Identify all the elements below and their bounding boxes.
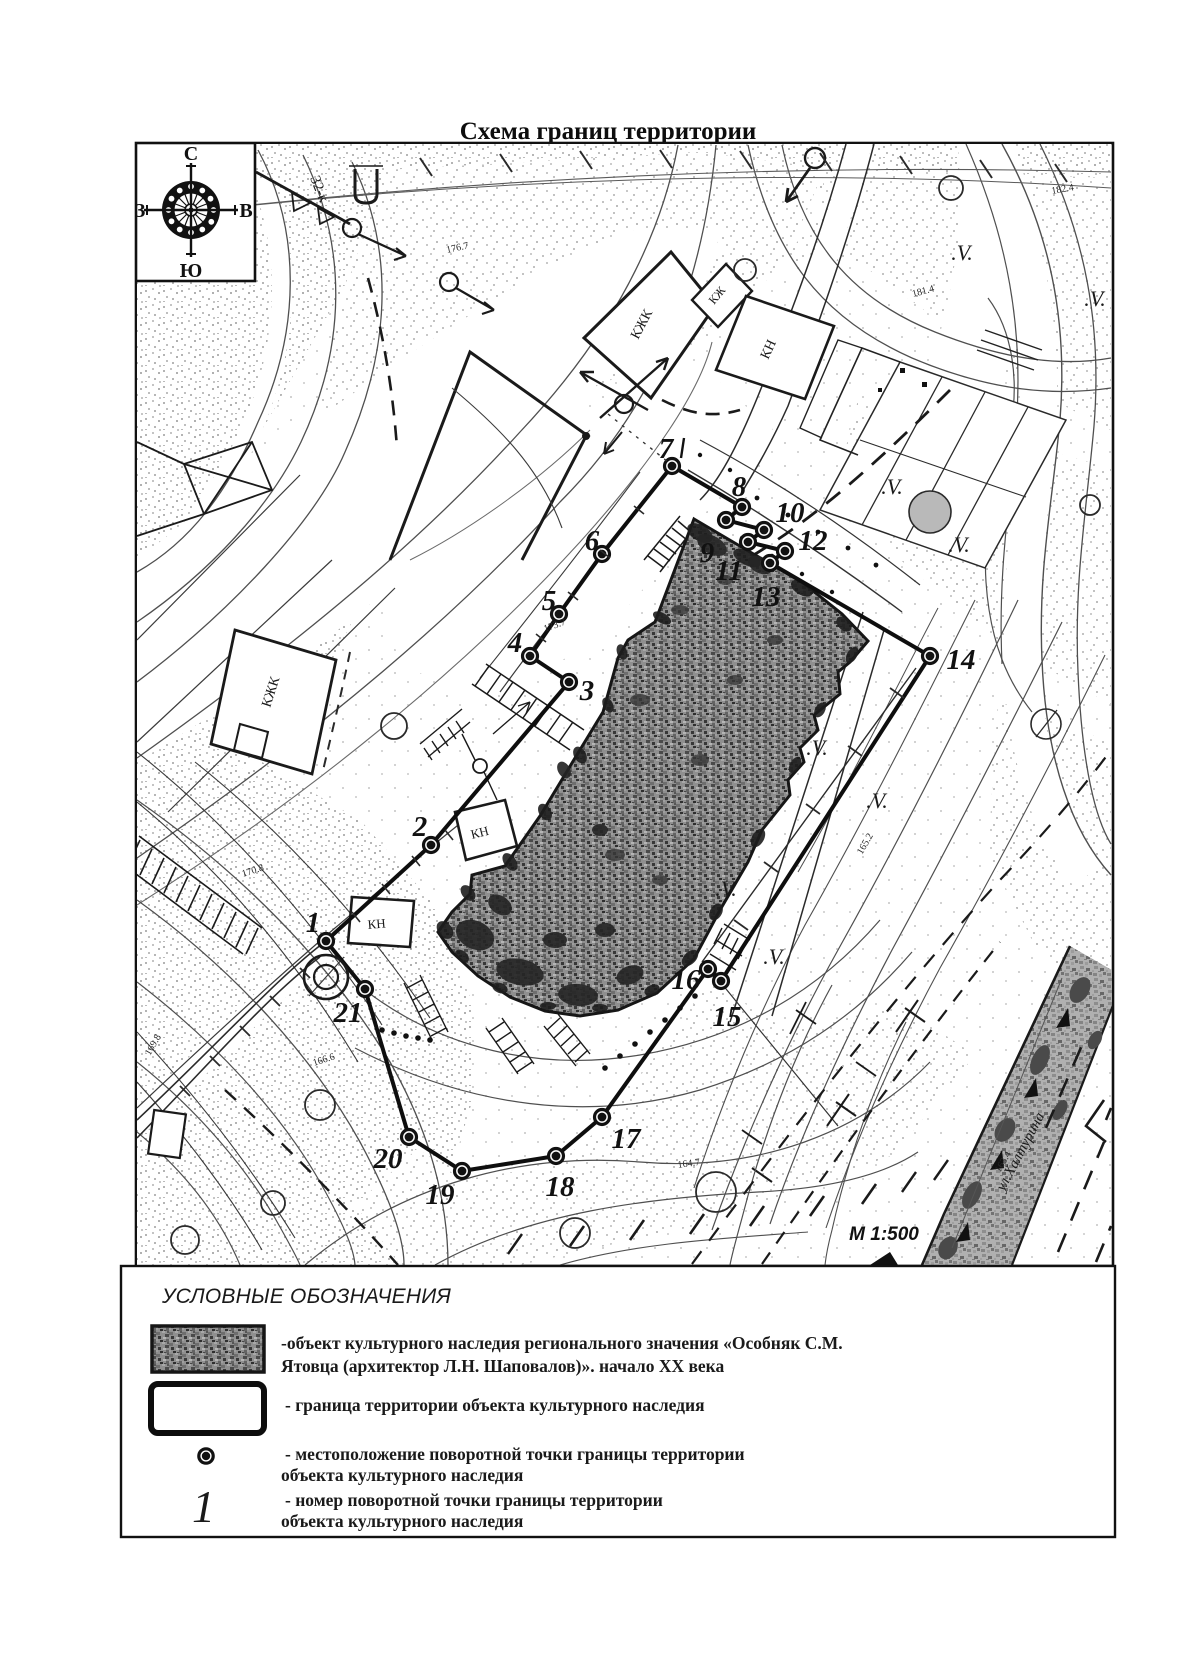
svg-text:- местоположение поворотной то: - местоположение поворотной точки границ… xyxy=(285,1444,745,1464)
svg-text:Ятовца (архитектор Л.Н. Шапова: Ятовца (архитектор Л.Н. Шаповалов)». нач… xyxy=(281,1356,725,1376)
svg-text:21: 21 xyxy=(333,997,363,1029)
svg-text:.V.: .V. xyxy=(715,876,737,901)
svg-text:11: 11 xyxy=(715,555,742,587)
svg-text:5: 5 xyxy=(542,585,557,617)
svg-text:КН: КН xyxy=(367,915,386,932)
svg-text:.V.: .V. xyxy=(866,788,888,813)
svg-text:17: 17 xyxy=(612,1123,643,1155)
svg-text:16: 16 xyxy=(672,964,702,996)
svg-text:12: 12 xyxy=(799,525,828,557)
svg-text:.V.: .V. xyxy=(1084,286,1106,311)
svg-text:С: С xyxy=(184,143,198,165)
svg-text:18: 18 xyxy=(546,1171,576,1203)
svg-text:9: 9 xyxy=(700,537,715,569)
svg-text:3: 3 xyxy=(579,675,595,707)
svg-text:объекта культурного наследия: объекта культурного наследия xyxy=(281,1465,523,1485)
svg-text:15: 15 xyxy=(713,1001,742,1033)
svg-text:М 1:500: М 1:500 xyxy=(849,1224,919,1245)
svg-text:- граница территории объекта к: - граница территории объекта культурного… xyxy=(285,1395,705,1415)
svg-text:4: 4 xyxy=(507,627,523,659)
svg-text:.V.: .V. xyxy=(763,944,785,969)
svg-text:Схема границ территории: Схема границ территории xyxy=(460,118,757,145)
svg-text:Ю: Ю xyxy=(180,260,203,282)
svg-text:.V.: .V. xyxy=(948,532,970,557)
svg-text:В: В xyxy=(239,200,252,222)
svg-text:.V.: .V. xyxy=(806,735,828,760)
svg-text:6: 6 xyxy=(585,525,600,557)
svg-text:13: 13 xyxy=(752,581,781,613)
svg-text:20: 20 xyxy=(373,1143,403,1175)
svg-text:объекта культурного наследия: объекта культурного наследия xyxy=(281,1511,523,1531)
svg-text:19: 19 xyxy=(426,1179,455,1211)
svg-text:1: 1 xyxy=(192,1481,215,1532)
svg-text:1: 1 xyxy=(306,907,321,939)
svg-text:14: 14 xyxy=(947,644,976,676)
svg-text:.V.: .V. xyxy=(951,240,973,265)
svg-text:2: 2 xyxy=(412,811,428,843)
svg-text:УСЛОВНЫЕ ОБОЗНАЧЕНИЯ: УСЛОВНЫЕ ОБОЗНАЧЕНИЯ xyxy=(161,1285,451,1308)
svg-text:8: 8 xyxy=(732,471,747,503)
svg-text:.V.: .V. xyxy=(881,474,903,499)
svg-text:-объект культурного наследия р: -объект культурного наследия регионально… xyxy=(281,1333,843,1353)
svg-text:- номер поворотной точки грани: - номер поворотной точки границы террито… xyxy=(285,1490,663,1510)
